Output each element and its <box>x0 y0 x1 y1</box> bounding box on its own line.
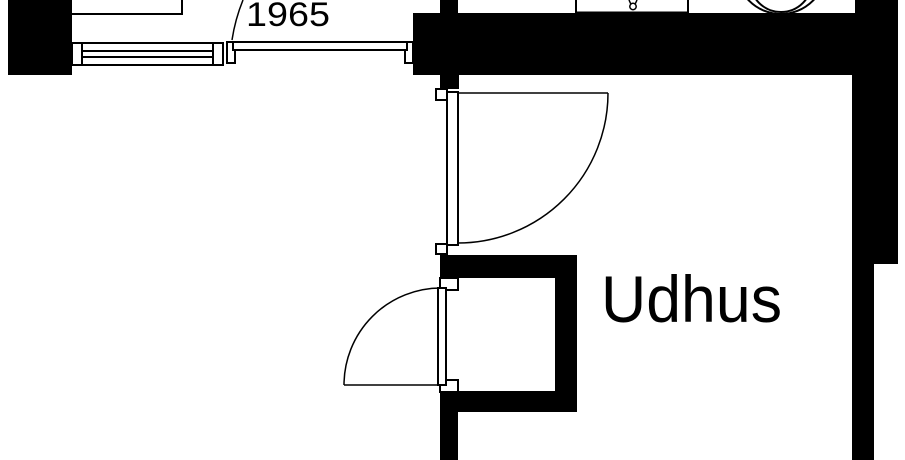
door-leaf-closed <box>438 288 446 385</box>
shed-annex-wall-bottom <box>440 391 577 412</box>
shed-annex-wall-left-lower <box>440 412 458 460</box>
window-left <box>72 43 223 65</box>
entrance-sill <box>233 42 407 50</box>
door-jamb-bottom <box>436 244 447 254</box>
exterior-wall-right-lower <box>852 263 874 460</box>
door-jamb-top <box>436 89 447 100</box>
year-label: 1965 <box>246 0 330 34</box>
partition-stub-above-band <box>440 0 458 14</box>
partition-stub-below-band <box>440 75 459 89</box>
room-label: Udhus <box>601 262 782 336</box>
exterior-wall-right-top <box>855 0 898 14</box>
floor-plan: 1965 Udhus <box>0 0 905 460</box>
window-frame <box>72 43 223 65</box>
floor-plan-drawing: 1965 Udhus <box>0 0 905 460</box>
exterior-wall-horizontal-band <box>413 13 898 75</box>
door-leaf-closed <box>447 92 458 245</box>
shed-annex-wall-right <box>555 255 577 412</box>
exterior-wall-left-block <box>8 0 72 75</box>
exterior-wall-right-upper <box>852 75 898 264</box>
